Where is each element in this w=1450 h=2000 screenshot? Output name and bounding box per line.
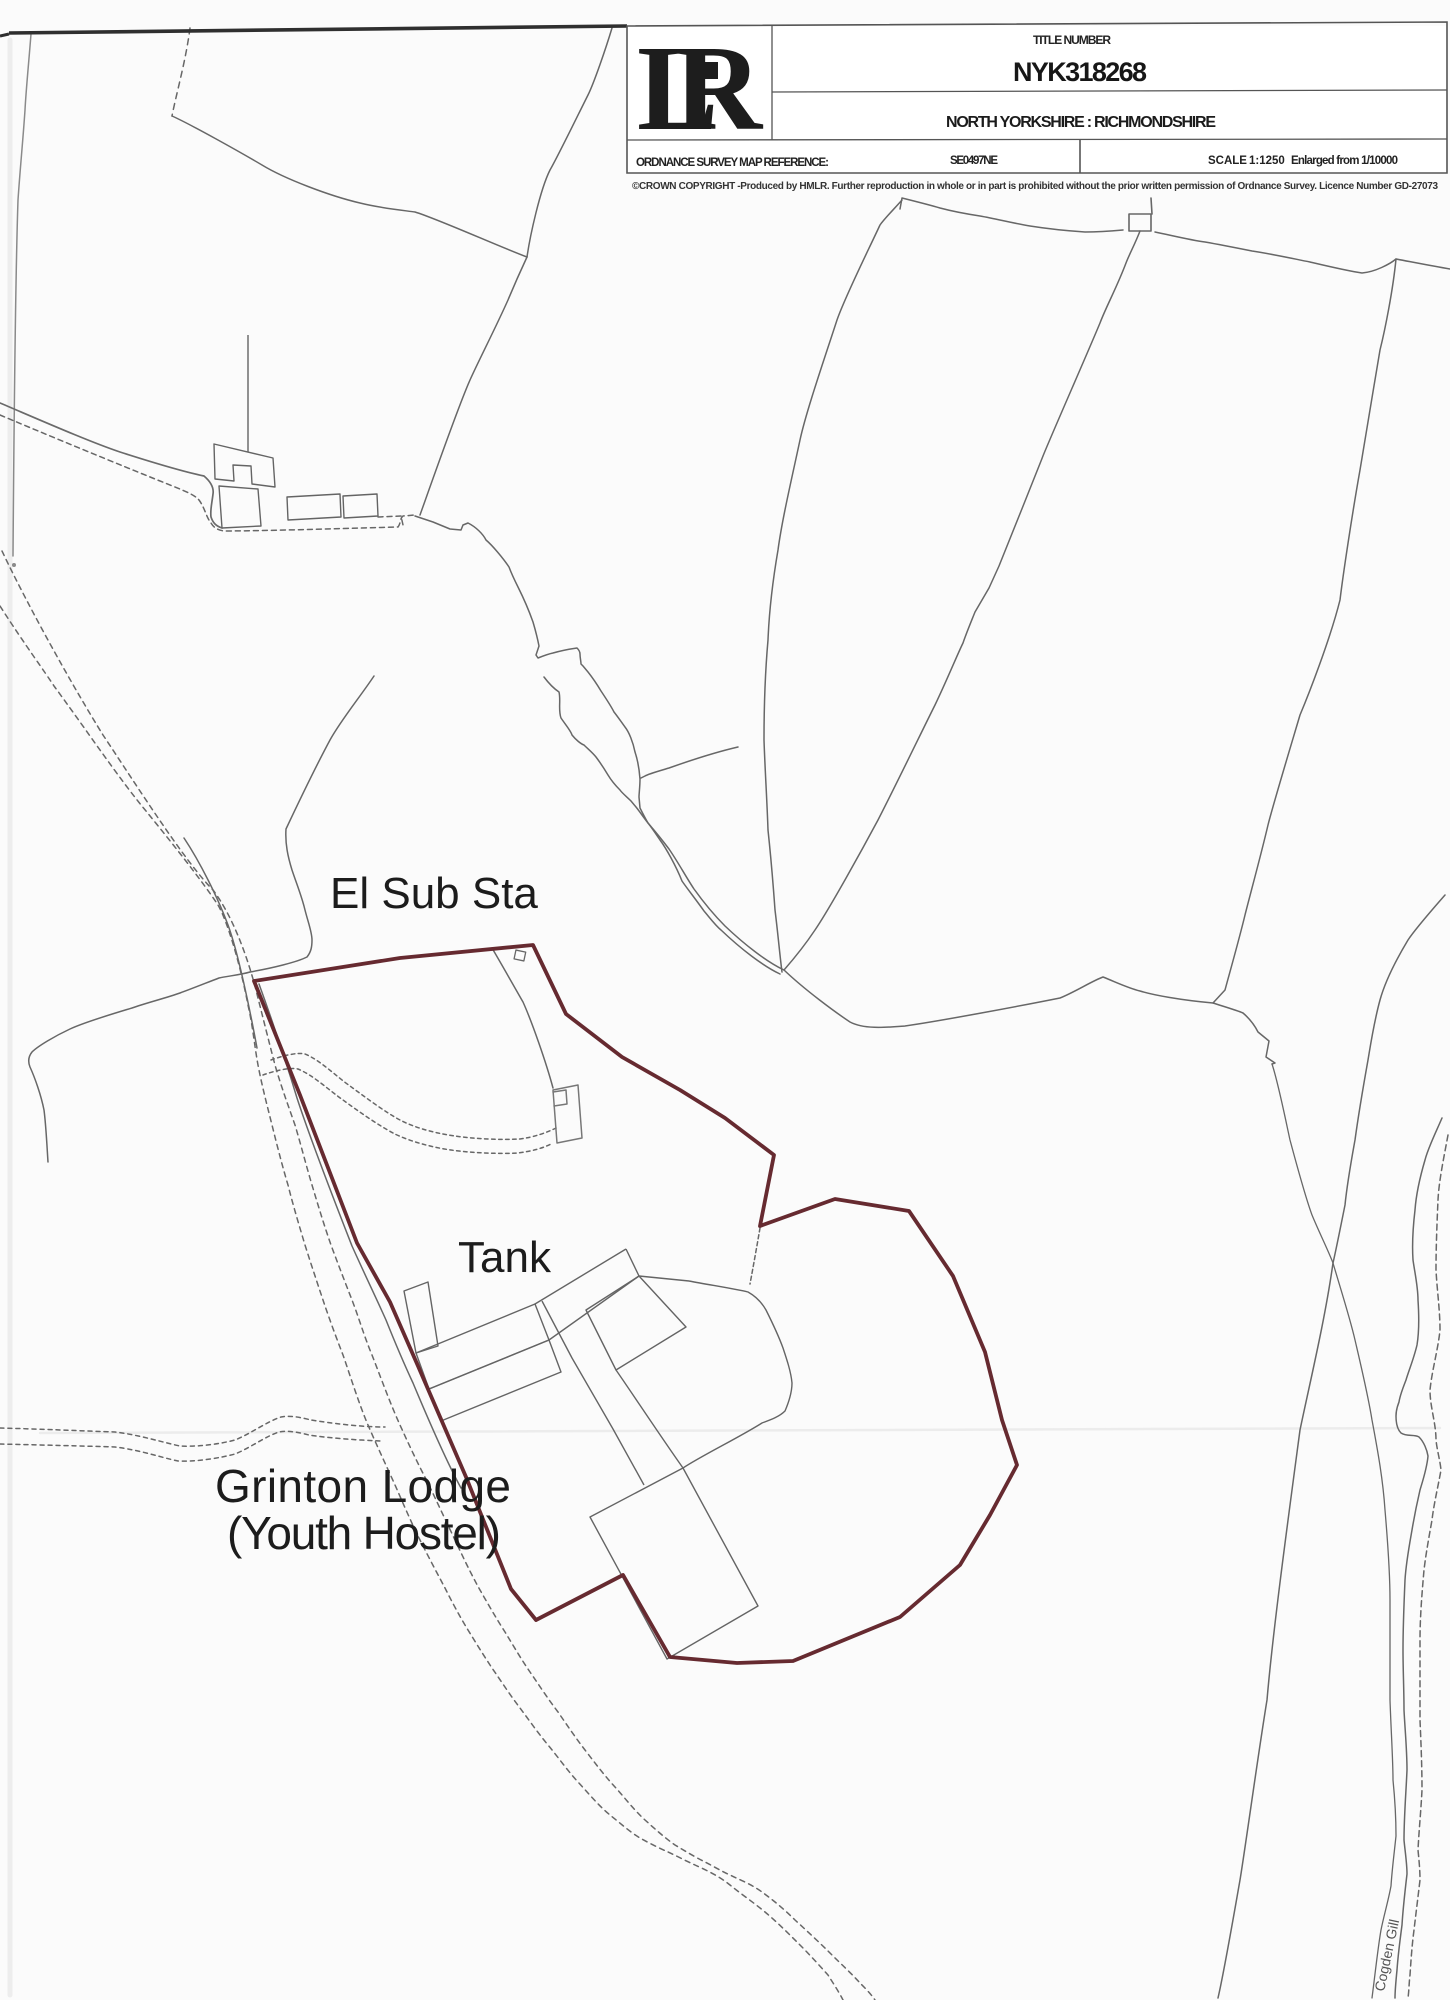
svg-text:SCALE: SCALE (1208, 155, 1247, 167)
svg-text:TITLE NUMBER: TITLE NUMBER (1033, 33, 1111, 47)
svg-text:SE0497NE: SE0497NE (950, 155, 998, 167)
svg-text:NORTH YORKSHIRE : RICHMONDSHIR: NORTH YORKSHIRE : RICHMONDSHIRE (946, 114, 1216, 131)
svg-text:Cogden Gill: Cogden Gill (1371, 1918, 1402, 1993)
svg-text:©CROWN COPYRIGHT -Produced by: ©CROWN COPYRIGHT -Produced by HMLR. Furt… (632, 181, 1438, 192)
svg-text:El Sub Sta: El Sub Sta (330, 869, 538, 918)
svg-text:R: R (674, 21, 764, 156)
svg-text:(Youth Hostel): (Youth Hostel) (227, 1507, 501, 1559)
svg-text:1:1250: 1:1250 (1249, 155, 1285, 167)
svg-text:Grinton Lodge: Grinton Lodge (215, 1460, 511, 1512)
svg-text:Tank: Tank (458, 1233, 552, 1282)
svg-text:ORDNANCE SURVEY MAP REFERENCE:: ORDNANCE SURVEY MAP REFERENCE: (636, 157, 829, 169)
svg-text:Enlarged from 1/10000: Enlarged from 1/10000 (1291, 155, 1398, 167)
svg-text:NYK318268: NYK318268 (1013, 57, 1147, 87)
